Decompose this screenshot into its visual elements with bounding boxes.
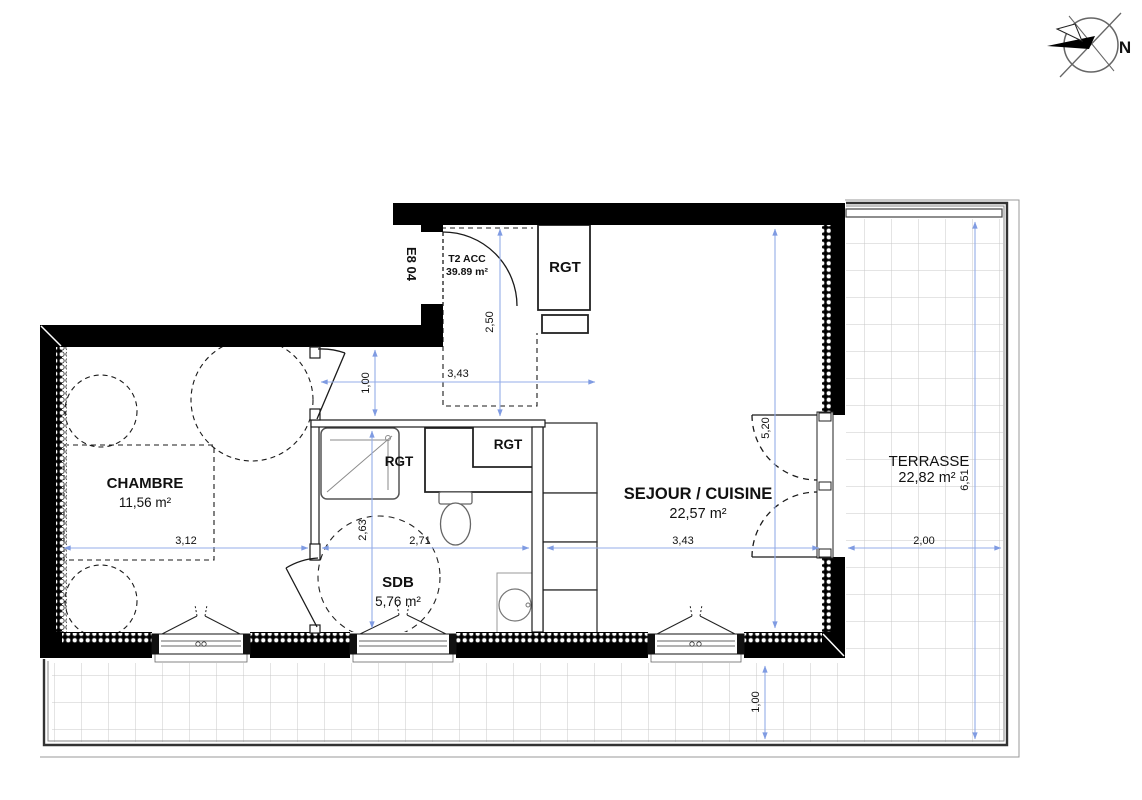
sdb-label: SDB: [382, 574, 414, 591]
sejour-area: 22,57 m²: [669, 506, 726, 522]
floor-plan-drawing: 3,12 2,71 3,43 2,00 3,43 2,50 1,00 2,63 …: [0, 0, 1142, 800]
chambre-furniture: [64, 339, 313, 637]
north-label: N: [1119, 38, 1131, 57]
dim-terrasse-width: 2,00: [913, 535, 934, 547]
unit-type-label: T2 ACC: [448, 253, 486, 265]
rgt-entry-label: RGT: [549, 259, 581, 276]
dim-sejour-depth: 5,20: [760, 417, 772, 438]
dim-hall-width: 3,43: [447, 368, 468, 380]
rgt-sdb-label: RGT: [385, 454, 414, 469]
terrasse-area-label: 22,82 m²: [898, 470, 955, 486]
chambre-door: [310, 347, 345, 420]
rgt-closet-label: RGT: [494, 437, 523, 452]
dim-sdb-depth: 2,63: [357, 519, 369, 540]
terrasse-label: TERRASSE: [889, 453, 970, 470]
chambre-area: 11,56 m²: [119, 495, 172, 510]
window-sdb: [350, 604, 456, 662]
dim-sdb-width: 2,71: [409, 535, 430, 547]
north-compass: N: [1047, 13, 1131, 77]
unit-id-label: E8 04: [404, 247, 419, 282]
dim-sejour-width: 3,43: [672, 535, 693, 547]
top-wall: [393, 203, 845, 225]
unit-area-label: 39.89 m²: [446, 266, 489, 278]
dim-chambre-width: 3,12: [175, 535, 196, 547]
turning-circle-chambre: [191, 339, 313, 461]
dim-terrasse-strip-depth: 1,00: [750, 691, 762, 712]
windows: [152, 604, 744, 662]
entry-jamb-top: [421, 203, 443, 232]
sejour-label: SEJOUR / CUISINE: [624, 485, 773, 503]
clearance-circle-small-top: [65, 375, 137, 447]
sdb-top-wall: [311, 420, 545, 427]
window-sejour: [648, 605, 744, 662]
toilet: [439, 492, 472, 545]
window-chambre: [152, 605, 250, 662]
dim-hall-depth: 2,50: [484, 311, 496, 332]
fixtures: [64, 225, 597, 638]
sdb-area: 5,76 m²: [375, 594, 421, 609]
floor-plan-page: 3,12 2,71 3,43 2,00 3,43 2,50 1,00 2,63 …: [0, 0, 1142, 800]
washbasin: [497, 573, 532, 637]
dim-corridor-width: 1,00: [360, 372, 372, 393]
compass-arrow-solid: [1047, 36, 1095, 49]
chambre-label: CHAMBRE: [107, 475, 184, 492]
terrasse-railing: [846, 209, 1002, 217]
kitchen-cabinets: [543, 423, 597, 634]
chambre-top-wall: [40, 325, 443, 347]
entry-closet-shelf: [542, 315, 588, 333]
entry-jamb-bottom: [421, 304, 443, 347]
sdb-door: [286, 544, 320, 633]
chambre-sdb-wall: [311, 419, 319, 560]
clearance-circle-small-bottom: [65, 565, 137, 637]
sdb-sejour-wall: [532, 427, 543, 632]
dim-terrasse-length: 6,51: [959, 469, 971, 490]
